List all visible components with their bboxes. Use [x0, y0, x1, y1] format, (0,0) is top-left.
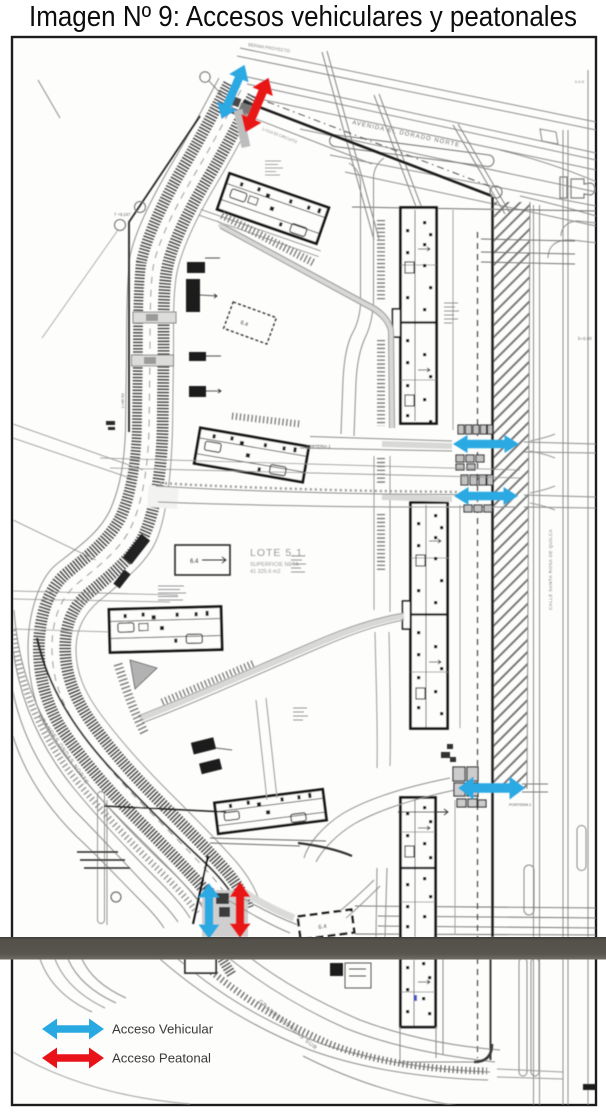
svg-text:Acceso Peatonal: Acceso Peatonal	[112, 1051, 211, 1066]
svg-text:PORTERIA 1: PORTERIA 1	[306, 444, 331, 449]
svg-text:SUPERFICIE NETA: SUPERFICIE NETA	[250, 562, 299, 568]
svg-text:LOTE 5.1.: LOTE 5.1.	[250, 547, 307, 559]
svg-text:L=45.50: L=45.50	[120, 393, 125, 408]
svg-text:PORTERIA 2: PORTERIA 2	[509, 803, 531, 807]
svg-text:b=6.00: b=6.00	[578, 336, 592, 341]
svg-text:6.4: 6.4	[318, 924, 328, 931]
svg-text:b-0.6: b-0.6	[575, 79, 585, 84]
svg-text:41 325.6 m2: 41 325.6 m2	[250, 569, 281, 575]
svg-text:Acceso Vehicular: Acceso Vehicular	[112, 1022, 214, 1037]
svg-text:7 +8.247: 7 +8.247	[114, 212, 131, 217]
svg-text:CALLE SANTA ROSA DE QUILCA: CALLE SANTA ROSA DE QUILCA	[548, 528, 553, 610]
svg-text:Imagen Nº 9: Accesos vehicular: Imagen Nº 9: Accesos vehiculares y peato…	[29, 1, 577, 33]
svg-text:6.4: 6.4	[190, 559, 199, 565]
